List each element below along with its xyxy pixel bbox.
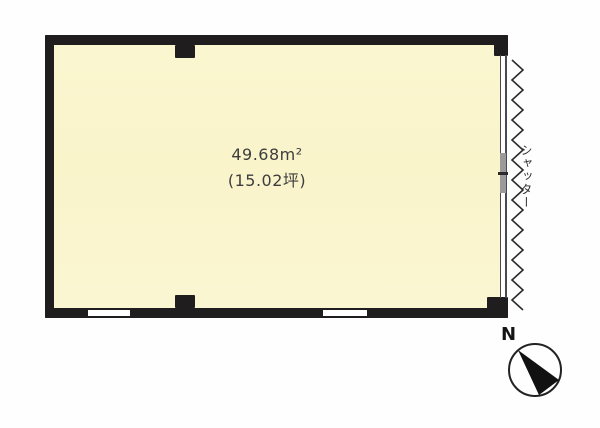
compass-icon	[509, 344, 561, 396]
area-tsubo-text: (15.02坪)	[182, 168, 352, 194]
floorplan-canvas: 49.68m² (15.02坪) シャッター N	[0, 0, 600, 428]
compass-north-label: N	[501, 324, 516, 345]
shutter-label: シャッター	[519, 144, 533, 219]
area-sqm-text: 49.68m²	[182, 142, 352, 168]
room-area-label: 49.68m² (15.02坪)	[182, 142, 352, 194]
plan-symbols-layer	[0, 0, 600, 428]
